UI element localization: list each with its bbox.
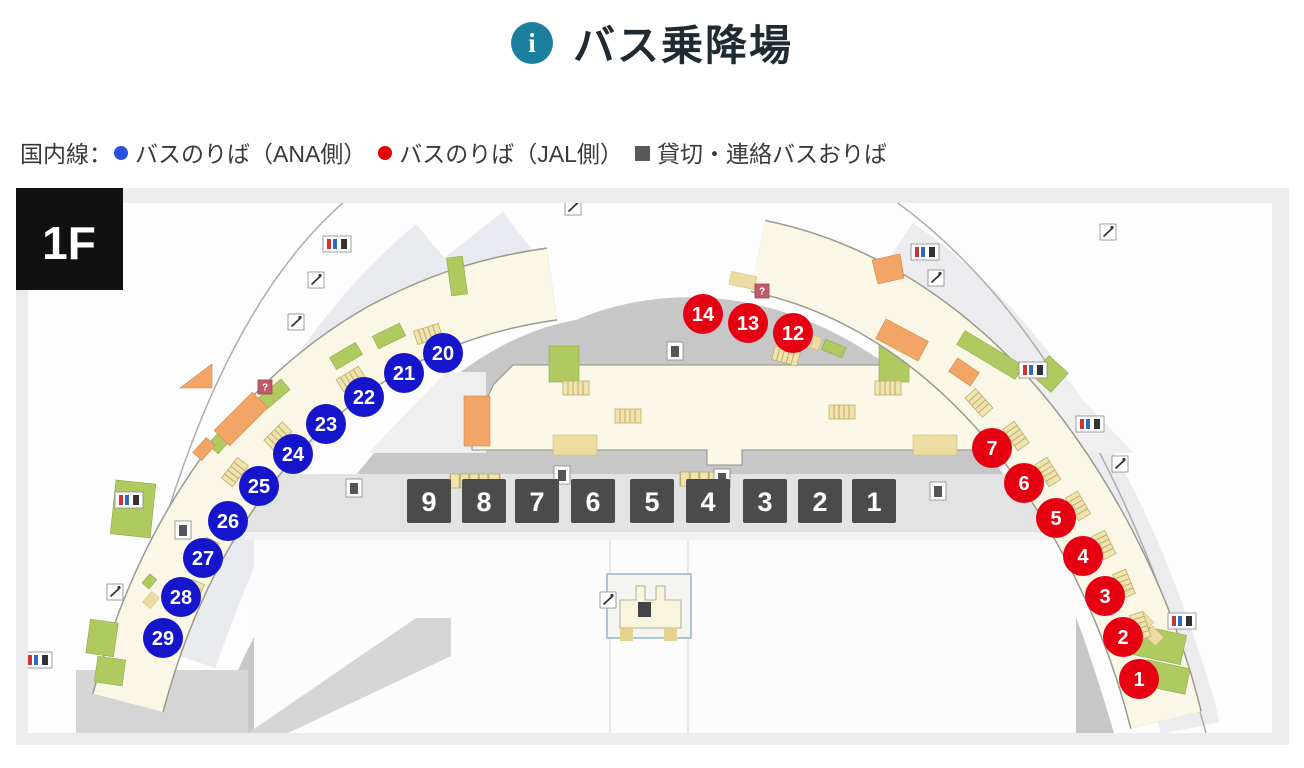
floor-label: 1F [42, 217, 96, 269]
svg-text:3: 3 [757, 487, 772, 517]
info-icon: i [511, 22, 553, 64]
jal-stop-7: 7 [972, 428, 1012, 468]
jal-stop-13: 13 [728, 303, 768, 343]
jal-stop-6: 6 [1004, 463, 1044, 503]
jal-stop-1: 1 [1119, 659, 1159, 699]
jal-stop-14: 14 [683, 294, 723, 334]
escalator-icon [928, 270, 944, 286]
page-title: バス乗降場 [573, 12, 793, 73]
information-icon [258, 380, 272, 394]
svg-text:6: 6 [585, 487, 600, 517]
svg-text:3: 3 [1099, 586, 1110, 608]
alight-stop-6: 6 [571, 479, 615, 523]
ana-stop-26: 26 [208, 501, 248, 541]
alight-stop-4: 4 [686, 479, 730, 523]
elevator-icon [667, 342, 683, 360]
svg-text:26: 26 [217, 511, 239, 533]
svg-text:14: 14 [692, 304, 715, 326]
alight-stop-2: 2 [798, 479, 842, 523]
alight-stop-9: 9 [407, 479, 451, 523]
svg-text:8: 8 [476, 487, 491, 517]
legend: 国内線： バスのりば（ANA側） バスのりば（JAL側） 貸切・連絡バスおりば [20, 135, 887, 169]
ana-stop-23: 23 [306, 404, 346, 444]
escalator-icon [600, 592, 616, 608]
svg-text:29: 29 [152, 628, 174, 650]
elevator-icon [346, 479, 362, 497]
svg-text:24: 24 [282, 444, 305, 466]
svg-text:20: 20 [432, 343, 454, 365]
floor-label-box: 1F [16, 188, 123, 290]
escalator-icon [1100, 224, 1116, 240]
legend-ana-label: バスのりば（ANA側） [135, 135, 366, 169]
alight-stop-3: 3 [743, 479, 787, 523]
escalator-icon [1112, 456, 1128, 472]
alight-stop-5: 5 [630, 479, 674, 523]
legend-jal-circle-icon [378, 146, 392, 160]
svg-text:12: 12 [782, 323, 804, 345]
svg-text:7: 7 [529, 487, 544, 517]
svg-text:28: 28 [170, 587, 192, 609]
elevator-icon [930, 482, 946, 500]
legend-ana-circle-icon [114, 146, 128, 160]
escalator-icon [308, 272, 324, 288]
svg-text:4: 4 [700, 487, 715, 517]
ana-stop-24: 24 [273, 434, 313, 474]
svg-text:6: 6 [1018, 473, 1029, 495]
alight-stop-8: 8 [462, 479, 506, 523]
svg-text:13: 13 [737, 313, 759, 335]
ana-stop-20: 20 [423, 333, 463, 373]
svg-text:1: 1 [866, 487, 881, 517]
svg-text:2: 2 [812, 487, 827, 517]
svg-text:25: 25 [248, 476, 270, 498]
escalator-icon [107, 584, 123, 600]
restroom-icon [24, 652, 52, 668]
jal-stop-12: 12 [773, 313, 813, 353]
svg-text:21: 21 [393, 363, 415, 385]
svg-text:2: 2 [1117, 627, 1128, 649]
legend-alight-square-icon [635, 146, 650, 161]
ana-stop-27: 27 [183, 538, 223, 578]
elevator-icon [175, 521, 191, 539]
alight-stop-1: 1 [852, 479, 896, 523]
restroom-icon [115, 492, 143, 508]
page-header: iバス乗降場 [0, 12, 1304, 73]
jal-stop-4: 4 [1063, 536, 1103, 576]
svg-text:23: 23 [315, 414, 337, 436]
restroom-icon [911, 244, 939, 260]
annex-building [607, 574, 691, 641]
jal-stop-5: 5 [1036, 498, 1076, 538]
restroom-icon [1019, 362, 1047, 378]
information-icon [755, 284, 769, 298]
ana-stop-21: 21 [384, 353, 424, 393]
ana-stop-25: 25 [239, 466, 279, 506]
svg-text:1: 1 [1133, 669, 1144, 691]
jal-stop-3: 3 [1085, 576, 1125, 616]
svg-text:9: 9 [421, 487, 436, 517]
alight-stop-markers: 987654321 [407, 479, 896, 523]
escalator-icon [288, 314, 304, 330]
legend-jal-label: バスのりば（JAL側） [399, 135, 623, 169]
restroom-icon [323, 236, 351, 252]
ana-stop-29: 29 [143, 618, 183, 658]
terminal-map: ? [16, 188, 1289, 745]
ana-stop-22: 22 [344, 377, 384, 417]
svg-text:4: 4 [1077, 546, 1089, 568]
ana-stop-28: 28 [161, 577, 201, 617]
escalator-icon [565, 199, 581, 215]
restroom-icon [1076, 416, 1104, 432]
alight-stop-7: 7 [515, 479, 559, 523]
svg-text:5: 5 [644, 487, 659, 517]
svg-text:27: 27 [192, 548, 214, 570]
legend-prefix: 国内線： [20, 135, 112, 169]
legend-alight-label: 貸切・連絡バスおりば [657, 135, 887, 169]
svg-text:7: 7 [986, 438, 997, 460]
svg-text:5: 5 [1050, 508, 1061, 530]
svg-text:22: 22 [353, 387, 375, 409]
jal-stop-2: 2 [1103, 617, 1143, 657]
restroom-icon [1168, 613, 1196, 629]
